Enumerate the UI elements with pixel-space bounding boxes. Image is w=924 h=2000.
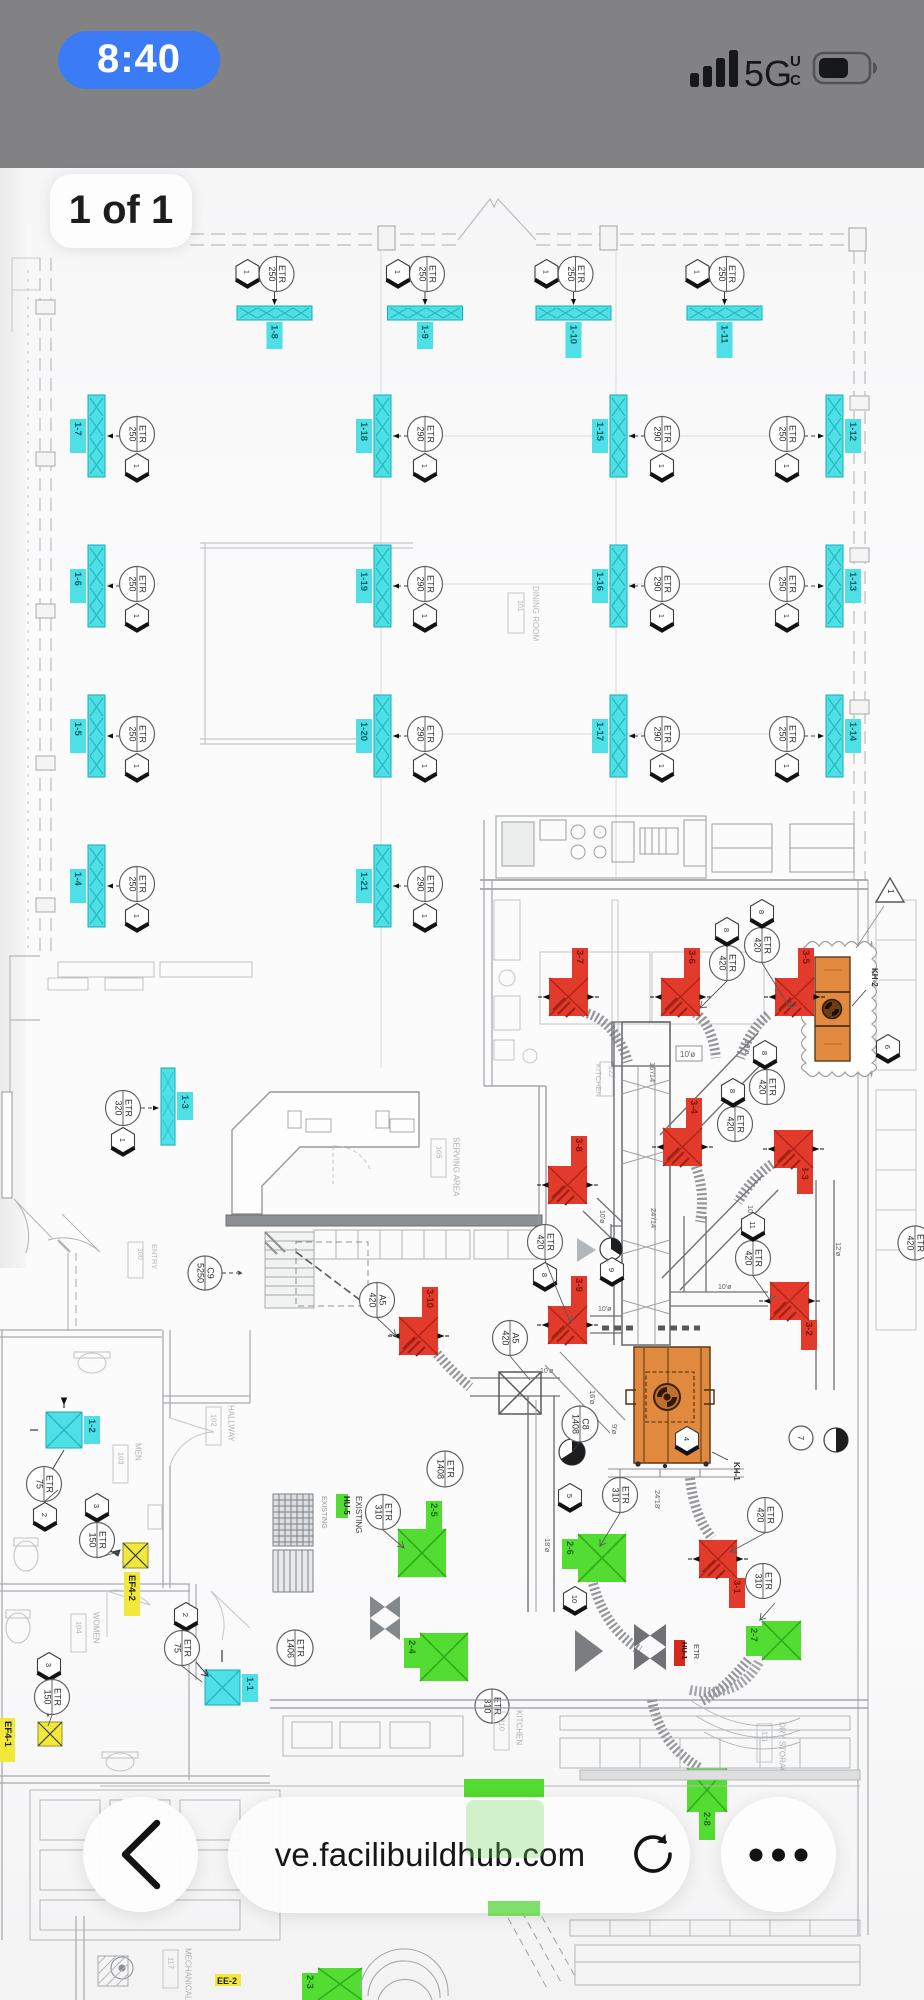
svg-text:8: 8 <box>722 928 731 932</box>
svg-text:ETR: ETR <box>53 1688 63 1707</box>
svg-text:KH-1: KH-1 <box>732 1462 741 1481</box>
svg-text:ETR: ETR <box>138 875 148 894</box>
svg-text:3-7: 3-7 <box>574 950 585 964</box>
svg-text:1: 1 <box>657 614 666 618</box>
svg-text:2-4: 2-4 <box>406 1640 417 1654</box>
svg-text:111: 111 <box>761 1731 770 1742</box>
svg-text:1408: 1408 <box>571 1414 581 1434</box>
svg-text:250: 250 <box>778 576 788 591</box>
svg-text:250: 250 <box>128 876 138 891</box>
svg-text:420: 420 <box>536 1234 546 1249</box>
svg-text:4: 4 <box>682 1437 691 1441</box>
svg-text:310: 310 <box>754 1573 764 1588</box>
svg-text:10'ø: 10'ø <box>680 1050 695 1059</box>
svg-text:290: 290 <box>653 576 663 591</box>
svg-text:1-18: 1-18 <box>358 422 369 441</box>
svg-text:1: 1 <box>132 464 141 468</box>
svg-text:3: 3 <box>92 1504 101 1508</box>
svg-text:3-8: 3-8 <box>573 1138 584 1152</box>
svg-text:EXISTING: EXISTING <box>354 1496 363 1533</box>
svg-text:3: 3 <box>44 1663 53 1667</box>
svg-text:9: 9 <box>607 1268 616 1272</box>
svg-text:ETR: ETR <box>183 1639 193 1658</box>
svg-text:ETR: ETR <box>621 1486 631 1505</box>
svg-text:1408: 1408 <box>436 1459 446 1479</box>
svg-text:1: 1 <box>132 614 141 618</box>
svg-text:3-1: 3-1 <box>731 1580 742 1594</box>
svg-text:2-7: 2-7 <box>748 1628 759 1642</box>
svg-text:420: 420 <box>718 955 728 970</box>
svg-text:SERVING AREA: SERVING AREA <box>452 1137 461 1197</box>
svg-text:10'ø: 10'ø <box>718 1284 732 1291</box>
svg-text:16'/14': 16'/14' <box>648 1062 657 1084</box>
svg-text:ETR: ETR <box>916 1234 924 1253</box>
svg-text:2-6: 2-6 <box>564 1541 575 1555</box>
svg-text:ETR: ETR <box>426 575 436 594</box>
svg-text:ETR: ETR <box>138 425 148 444</box>
svg-text:103: 103 <box>117 1452 126 1465</box>
svg-text:1-1: 1-1 <box>244 1677 255 1691</box>
svg-text:250: 250 <box>566 266 576 281</box>
svg-text:KH-2: KH-2 <box>870 968 879 987</box>
svg-text:1: 1 <box>693 270 702 274</box>
svg-text:250: 250 <box>717 266 727 281</box>
svg-text:1: 1 <box>420 764 429 768</box>
svg-text:1-15: 1-15 <box>594 422 605 442</box>
svg-text:8: 8 <box>540 1273 549 1277</box>
svg-text:102: 102 <box>210 1414 219 1427</box>
svg-text:1-10: 1-10 <box>568 325 579 344</box>
svg-text:420: 420 <box>744 1250 754 1265</box>
svg-text:ETR: ETR <box>426 425 436 444</box>
svg-text:1: 1 <box>393 270 402 274</box>
svg-text:2: 2 <box>181 1613 190 1617</box>
svg-text:ETR: ETR <box>426 875 436 894</box>
svg-text:8: 8 <box>757 910 766 914</box>
svg-text:1406: 1406 <box>286 1638 296 1658</box>
svg-text:ETR: ETR <box>426 725 436 744</box>
svg-text:5: 5 <box>565 1494 574 1498</box>
svg-text:10: 10 <box>570 1595 579 1603</box>
svg-text:8: 8 <box>728 1089 737 1093</box>
svg-text:ETR: ETR <box>736 1115 746 1134</box>
svg-text:1-17: 1-17 <box>594 722 605 741</box>
svg-text:HU-5: HU-5 <box>342 1496 351 1515</box>
svg-text:ETR: ETR <box>754 1249 764 1268</box>
svg-text:C8: C8 <box>581 1418 591 1430</box>
svg-text:KITCHEN: KITCHEN <box>515 1710 524 1745</box>
svg-text:250: 250 <box>418 266 428 281</box>
svg-text:1-16: 1-16 <box>594 572 605 591</box>
svg-text:2: 2 <box>40 1513 49 1517</box>
svg-text:ETR: ETR <box>788 575 798 594</box>
svg-text:250: 250 <box>128 726 138 741</box>
svg-text:1: 1 <box>782 764 791 768</box>
svg-text:C: C <box>790 72 801 89</box>
svg-text:ETR: ETR <box>45 1475 55 1494</box>
svg-text:EE-2: EE-2 <box>217 1976 237 1986</box>
svg-text:1-6: 1-6 <box>72 572 83 586</box>
svg-text:DINING ROOM: DINING ROOM <box>531 586 540 641</box>
svg-text:110: 110 <box>498 1719 507 1731</box>
svg-text:A5: A5 <box>511 1332 521 1343</box>
svg-text:1-14: 1-14 <box>847 722 858 742</box>
svg-text:1: 1 <box>132 914 141 918</box>
svg-text:3-10: 3-10 <box>424 1289 435 1308</box>
svg-text:MECHANICAL: MECHANICAL <box>184 1948 193 2000</box>
svg-text:250: 250 <box>778 726 788 741</box>
svg-text:ENTRY: ENTRY <box>150 1244 159 1269</box>
svg-text:1: 1 <box>542 270 551 274</box>
svg-text:KITCHEN: KITCHEN <box>594 1064 603 1097</box>
svg-text:290: 290 <box>416 426 426 441</box>
svg-text:1-8: 1-8 <box>269 325 280 339</box>
svg-text:ETR: ETR <box>728 954 738 973</box>
svg-text:290: 290 <box>416 726 426 741</box>
svg-text:1: 1 <box>886 889 895 894</box>
svg-text:1-11: 1-11 <box>719 325 730 344</box>
svg-text:1-21: 1-21 <box>358 872 369 892</box>
svg-text:10'ø: 10'ø <box>598 1210 605 1224</box>
svg-text:ETR: ETR <box>727 265 737 284</box>
svg-text:ETR: ETR <box>663 425 673 444</box>
svg-text:1: 1 <box>782 614 791 618</box>
svg-text:3-4: 3-4 <box>688 1100 699 1114</box>
svg-text:122: 122 <box>607 1066 614 1078</box>
svg-text:WOMEN: WOMEN <box>92 1612 101 1644</box>
svg-text:1: 1 <box>420 914 429 918</box>
svg-text:1-3: 1-3 <box>179 1095 190 1109</box>
svg-text:104: 104 <box>75 1621 84 1634</box>
svg-text:EXISTING: EXISTING <box>320 1496 327 1529</box>
svg-text:18'ø: 18'ø <box>543 1538 552 1553</box>
svg-text:12'ø: 12'ø <box>834 1242 843 1257</box>
svg-text:HU-1: HU-1 <box>680 1642 689 1660</box>
svg-text:ETR: ETR <box>277 265 287 284</box>
svg-text:16'ø: 16'ø <box>588 1390 597 1405</box>
svg-text:75: 75 <box>173 1643 183 1653</box>
svg-text:1: 1 <box>243 270 252 274</box>
svg-text:320: 320 <box>114 1100 124 1115</box>
svg-text:420: 420 <box>501 1330 511 1345</box>
svg-text:1-19: 1-19 <box>358 572 369 591</box>
svg-text:250: 250 <box>267 266 277 281</box>
svg-text:ETR: ETR <box>296 1639 306 1658</box>
svg-text:3-5: 3-5 <box>800 950 811 964</box>
svg-text:ETR: ETR <box>446 1460 456 1479</box>
svg-text:250: 250 <box>128 576 138 591</box>
svg-text:ETR: ETR <box>428 265 438 284</box>
svg-text:1: 1 <box>657 464 666 468</box>
svg-text:5G: 5G <box>744 53 792 94</box>
svg-text:100: 100 <box>136 1248 143 1260</box>
svg-text:1: 1 <box>657 764 666 768</box>
svg-text:3-2: 3-2 <box>803 1322 814 1336</box>
svg-text:ETR: ETR <box>692 1644 701 1660</box>
svg-text:ETR: ETR <box>663 725 673 744</box>
svg-text:ETR: ETR <box>764 1572 774 1591</box>
svg-text:290: 290 <box>653 426 663 441</box>
svg-text:ETR: ETR <box>763 936 773 955</box>
svg-text:EF4-1: EF4-1 <box>2 1721 13 1748</box>
svg-text:ETR: ETR <box>138 575 148 594</box>
svg-text:EF4-2: EF4-2 <box>126 1575 137 1601</box>
svg-text:310: 310 <box>483 1698 493 1713</box>
svg-text:1: 1 <box>420 614 429 618</box>
svg-text:1: 1 <box>118 1138 127 1142</box>
svg-text:1: 1 <box>132 764 141 768</box>
svg-text:290: 290 <box>653 726 663 741</box>
svg-text:1-9: 1-9 <box>419 325 430 339</box>
svg-text:250: 250 <box>778 426 788 441</box>
svg-text:420: 420 <box>906 1235 916 1250</box>
svg-text:1: 1 <box>420 464 429 468</box>
svg-text:1: 1 <box>782 464 791 468</box>
svg-text:8: 8 <box>760 1051 769 1055</box>
svg-text:ETR: ETR <box>124 1099 134 1118</box>
svg-text:250: 250 <box>128 426 138 441</box>
svg-text:101: 101 <box>516 600 523 612</box>
svg-text:75: 75 <box>35 1479 45 1489</box>
svg-text:310: 310 <box>374 1504 384 1519</box>
svg-text:1-20: 1-20 <box>358 722 369 741</box>
svg-text:290: 290 <box>416 876 426 891</box>
svg-text:7: 7 <box>796 1436 805 1441</box>
svg-text:2-5: 2-5 <box>428 1503 439 1517</box>
svg-text:1-7: 1-7 <box>72 422 83 436</box>
svg-text:5250: 5250 <box>196 1263 206 1283</box>
svg-text:ETR: ETR <box>138 725 148 744</box>
svg-text:1-12: 1-12 <box>847 422 858 441</box>
svg-text:1-13: 1-13 <box>847 572 858 591</box>
svg-text:310: 310 <box>611 1487 621 1502</box>
svg-text:MEN: MEN <box>134 1443 143 1461</box>
svg-text:1-2: 1-2 <box>86 1419 97 1433</box>
svg-text:3-6: 3-6 <box>686 950 697 964</box>
svg-text:1-4: 1-4 <box>72 872 83 886</box>
svg-text:ETR: ETR <box>663 575 673 594</box>
svg-text:420: 420 <box>753 937 763 952</box>
svg-text:3-3: 3-3 <box>799 1166 810 1180</box>
svg-text:6: 6 <box>883 1045 892 1049</box>
svg-text:10'ø: 10'ø <box>598 1306 612 1313</box>
svg-text:11: 11 <box>748 1221 757 1229</box>
svg-text:2-8: 2-8 <box>701 1812 712 1826</box>
svg-text:24'/14': 24'/14' <box>649 1208 658 1230</box>
svg-text:150: 150 <box>43 1689 53 1704</box>
svg-text:ETR: ETR <box>788 725 798 744</box>
svg-text:420: 420 <box>758 1079 768 1094</box>
svg-text:1-5: 1-5 <box>72 722 83 736</box>
svg-text:ETR: ETR <box>98 1531 108 1550</box>
svg-text:ETR: ETR <box>546 1233 556 1252</box>
svg-text:C9: C9 <box>206 1267 216 1279</box>
svg-text:150: 150 <box>88 1532 98 1547</box>
svg-text:U: U <box>790 53 801 70</box>
svg-text:ETR: ETR <box>788 425 798 444</box>
svg-text:2-3: 2-3 <box>304 1975 315 1989</box>
svg-text:9'ø: 9'ø <box>610 1424 619 1435</box>
svg-text:105: 105 <box>435 1146 444 1159</box>
svg-text:420: 420 <box>726 1116 736 1131</box>
svg-text:ETR: ETR <box>768 1078 778 1097</box>
svg-text:3-9: 3-9 <box>573 1278 584 1292</box>
svg-text:24'18': 24'18' <box>653 1490 662 1510</box>
svg-text:ETR: ETR <box>576 265 586 284</box>
svg-text:290: 290 <box>416 576 426 591</box>
svg-text:A5: A5 <box>378 1294 388 1305</box>
svg-text:HALLWAY: HALLWAY <box>227 1405 236 1442</box>
svg-text:ETR: ETR <box>384 1503 394 1522</box>
svg-text:420: 420 <box>368 1292 378 1307</box>
svg-text:420: 420 <box>756 1507 766 1522</box>
svg-text:117: 117 <box>167 1957 176 1969</box>
svg-text:ETR: ETR <box>766 1506 776 1525</box>
